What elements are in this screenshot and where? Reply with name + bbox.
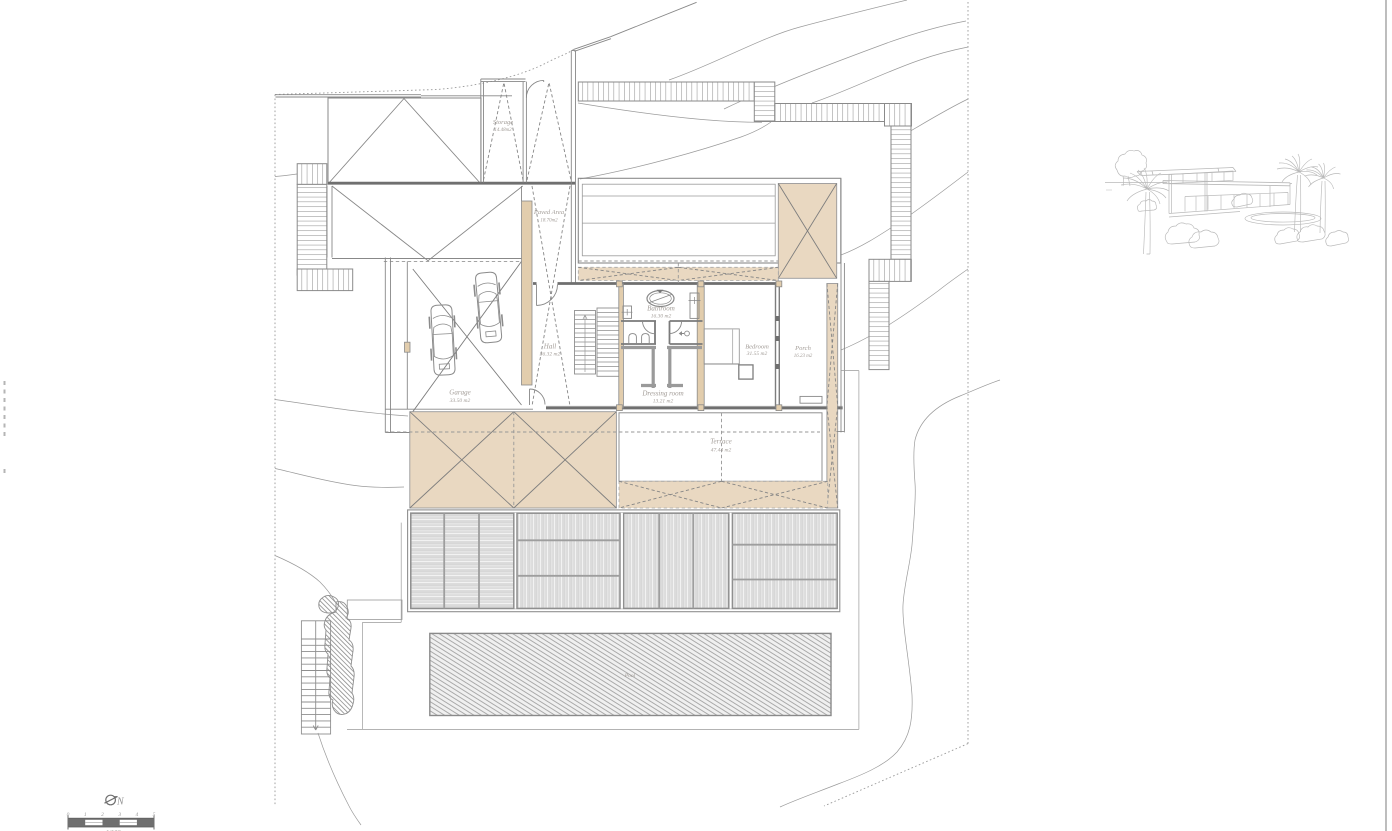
svg-text:Hall: Hall <box>543 343 557 351</box>
svg-text:4: 4 <box>136 811 139 818</box>
svg-text:N: N <box>116 797 125 808</box>
svg-text:18.70m2: 18.70m2 <box>540 219 558 224</box>
svg-text:14.48m2: 14.48m2 <box>494 128 512 133</box>
svg-text:33.50 m2: 33.50 m2 <box>449 398 471 404</box>
svg-text:36.32 m2: 36.32 m2 <box>539 352 561 358</box>
svg-text:2: 2 <box>101 812 104 818</box>
svg-text:47.44 m2: 47.44 m2 <box>711 447 732 454</box>
svg-text:16.30 m2: 16.30 m2 <box>651 314 672 320</box>
svg-text:Dressing room: Dressing room <box>641 390 683 398</box>
svg-text:Storage: Storage <box>493 119 513 126</box>
svg-text:Terrace: Terrace <box>710 438 732 446</box>
svg-text:Pool: Pool <box>624 673 636 679</box>
svg-text:31.55 m2: 31.55 m2 <box>746 351 768 357</box>
svg-text:Paved Area: Paved Area <box>533 209 564 216</box>
svg-text:1: 1 <box>84 812 87 818</box>
svg-text:13.21 m2: 13.21 m2 <box>653 399 674 405</box>
svg-text:Bathroom: Bathroom <box>647 305 675 313</box>
svg-text:3: 3 <box>117 812 121 818</box>
svg-text:16.23 m2: 16.23 m2 <box>794 354 813 359</box>
svg-text:Bedroom: Bedroom <box>745 344 769 351</box>
svg-text:Porch: Porch <box>794 345 811 352</box>
svg-text:Garage: Garage <box>449 389 470 397</box>
